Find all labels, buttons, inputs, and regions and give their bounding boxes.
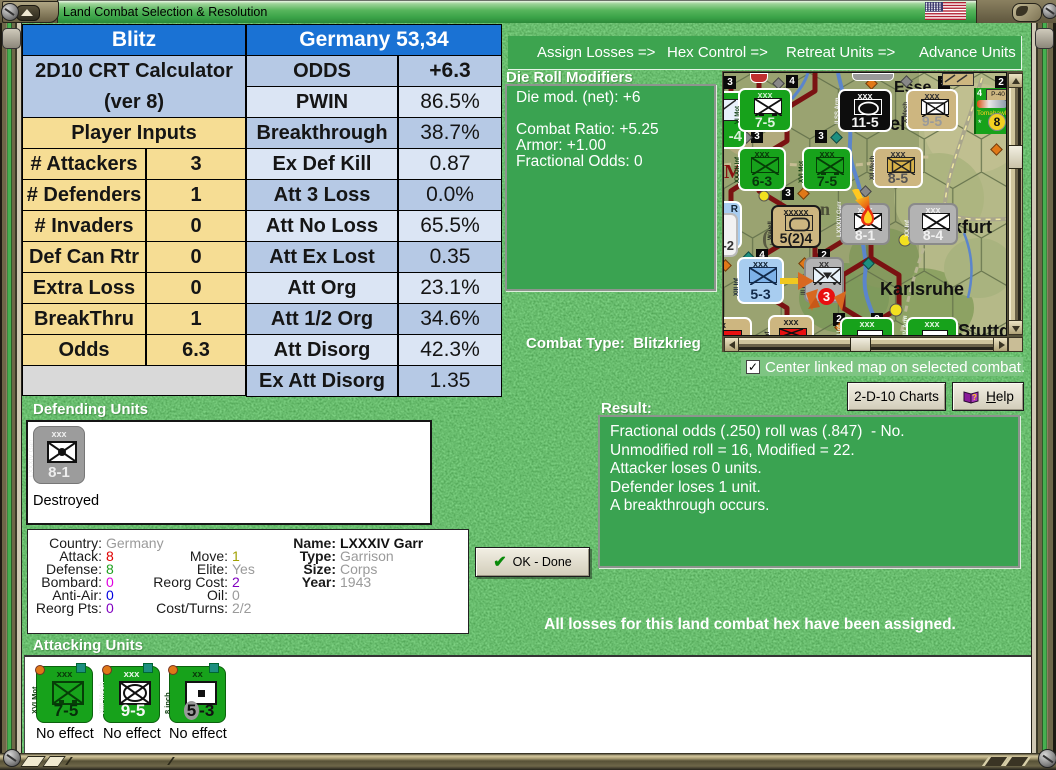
svg-text:n: n bbox=[820, 199, 830, 219]
svg-text:kfurt: kfurt bbox=[952, 217, 992, 237]
svg-text:Karlsruhe: Karlsruhe bbox=[880, 279, 964, 299]
svg-text:Stuttga: Stuttga bbox=[958, 321, 1006, 335]
svg-text:?: ? bbox=[972, 393, 977, 402]
